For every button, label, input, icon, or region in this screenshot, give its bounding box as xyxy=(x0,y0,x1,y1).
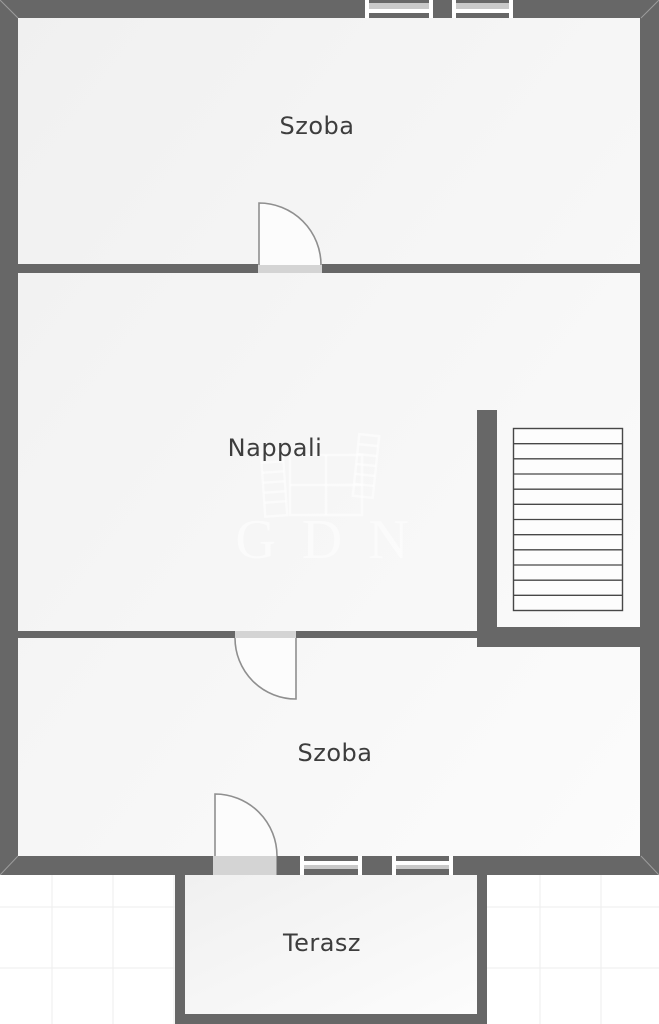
room-label-szoba-2: Szoba xyxy=(298,739,373,767)
wall-left xyxy=(0,0,18,875)
floor-plan-drawing: GDN Szoba Nappali Szoba Terasz xyxy=(0,0,659,1024)
watermark-text: GDN xyxy=(235,509,434,571)
room-label-szoba-1: Szoba xyxy=(280,112,355,140)
wall-right xyxy=(640,0,659,875)
door-opening-szoba2 xyxy=(235,631,296,638)
door-opening-terrace xyxy=(213,856,277,875)
room-label-nappali: Nappali xyxy=(228,434,323,462)
wall-stairwell-vertical xyxy=(477,410,497,647)
floor-plan-page: GDN Szoba Nappali Szoba Terasz xyxy=(0,0,659,1024)
door-opening-szoba1 xyxy=(258,264,322,273)
wall-divider-szoba1-nappali xyxy=(18,264,640,273)
room-label-terasz: Terasz xyxy=(282,929,361,957)
wall-top xyxy=(0,0,659,18)
wall-below-stairs xyxy=(477,627,640,647)
staircase xyxy=(514,429,623,611)
